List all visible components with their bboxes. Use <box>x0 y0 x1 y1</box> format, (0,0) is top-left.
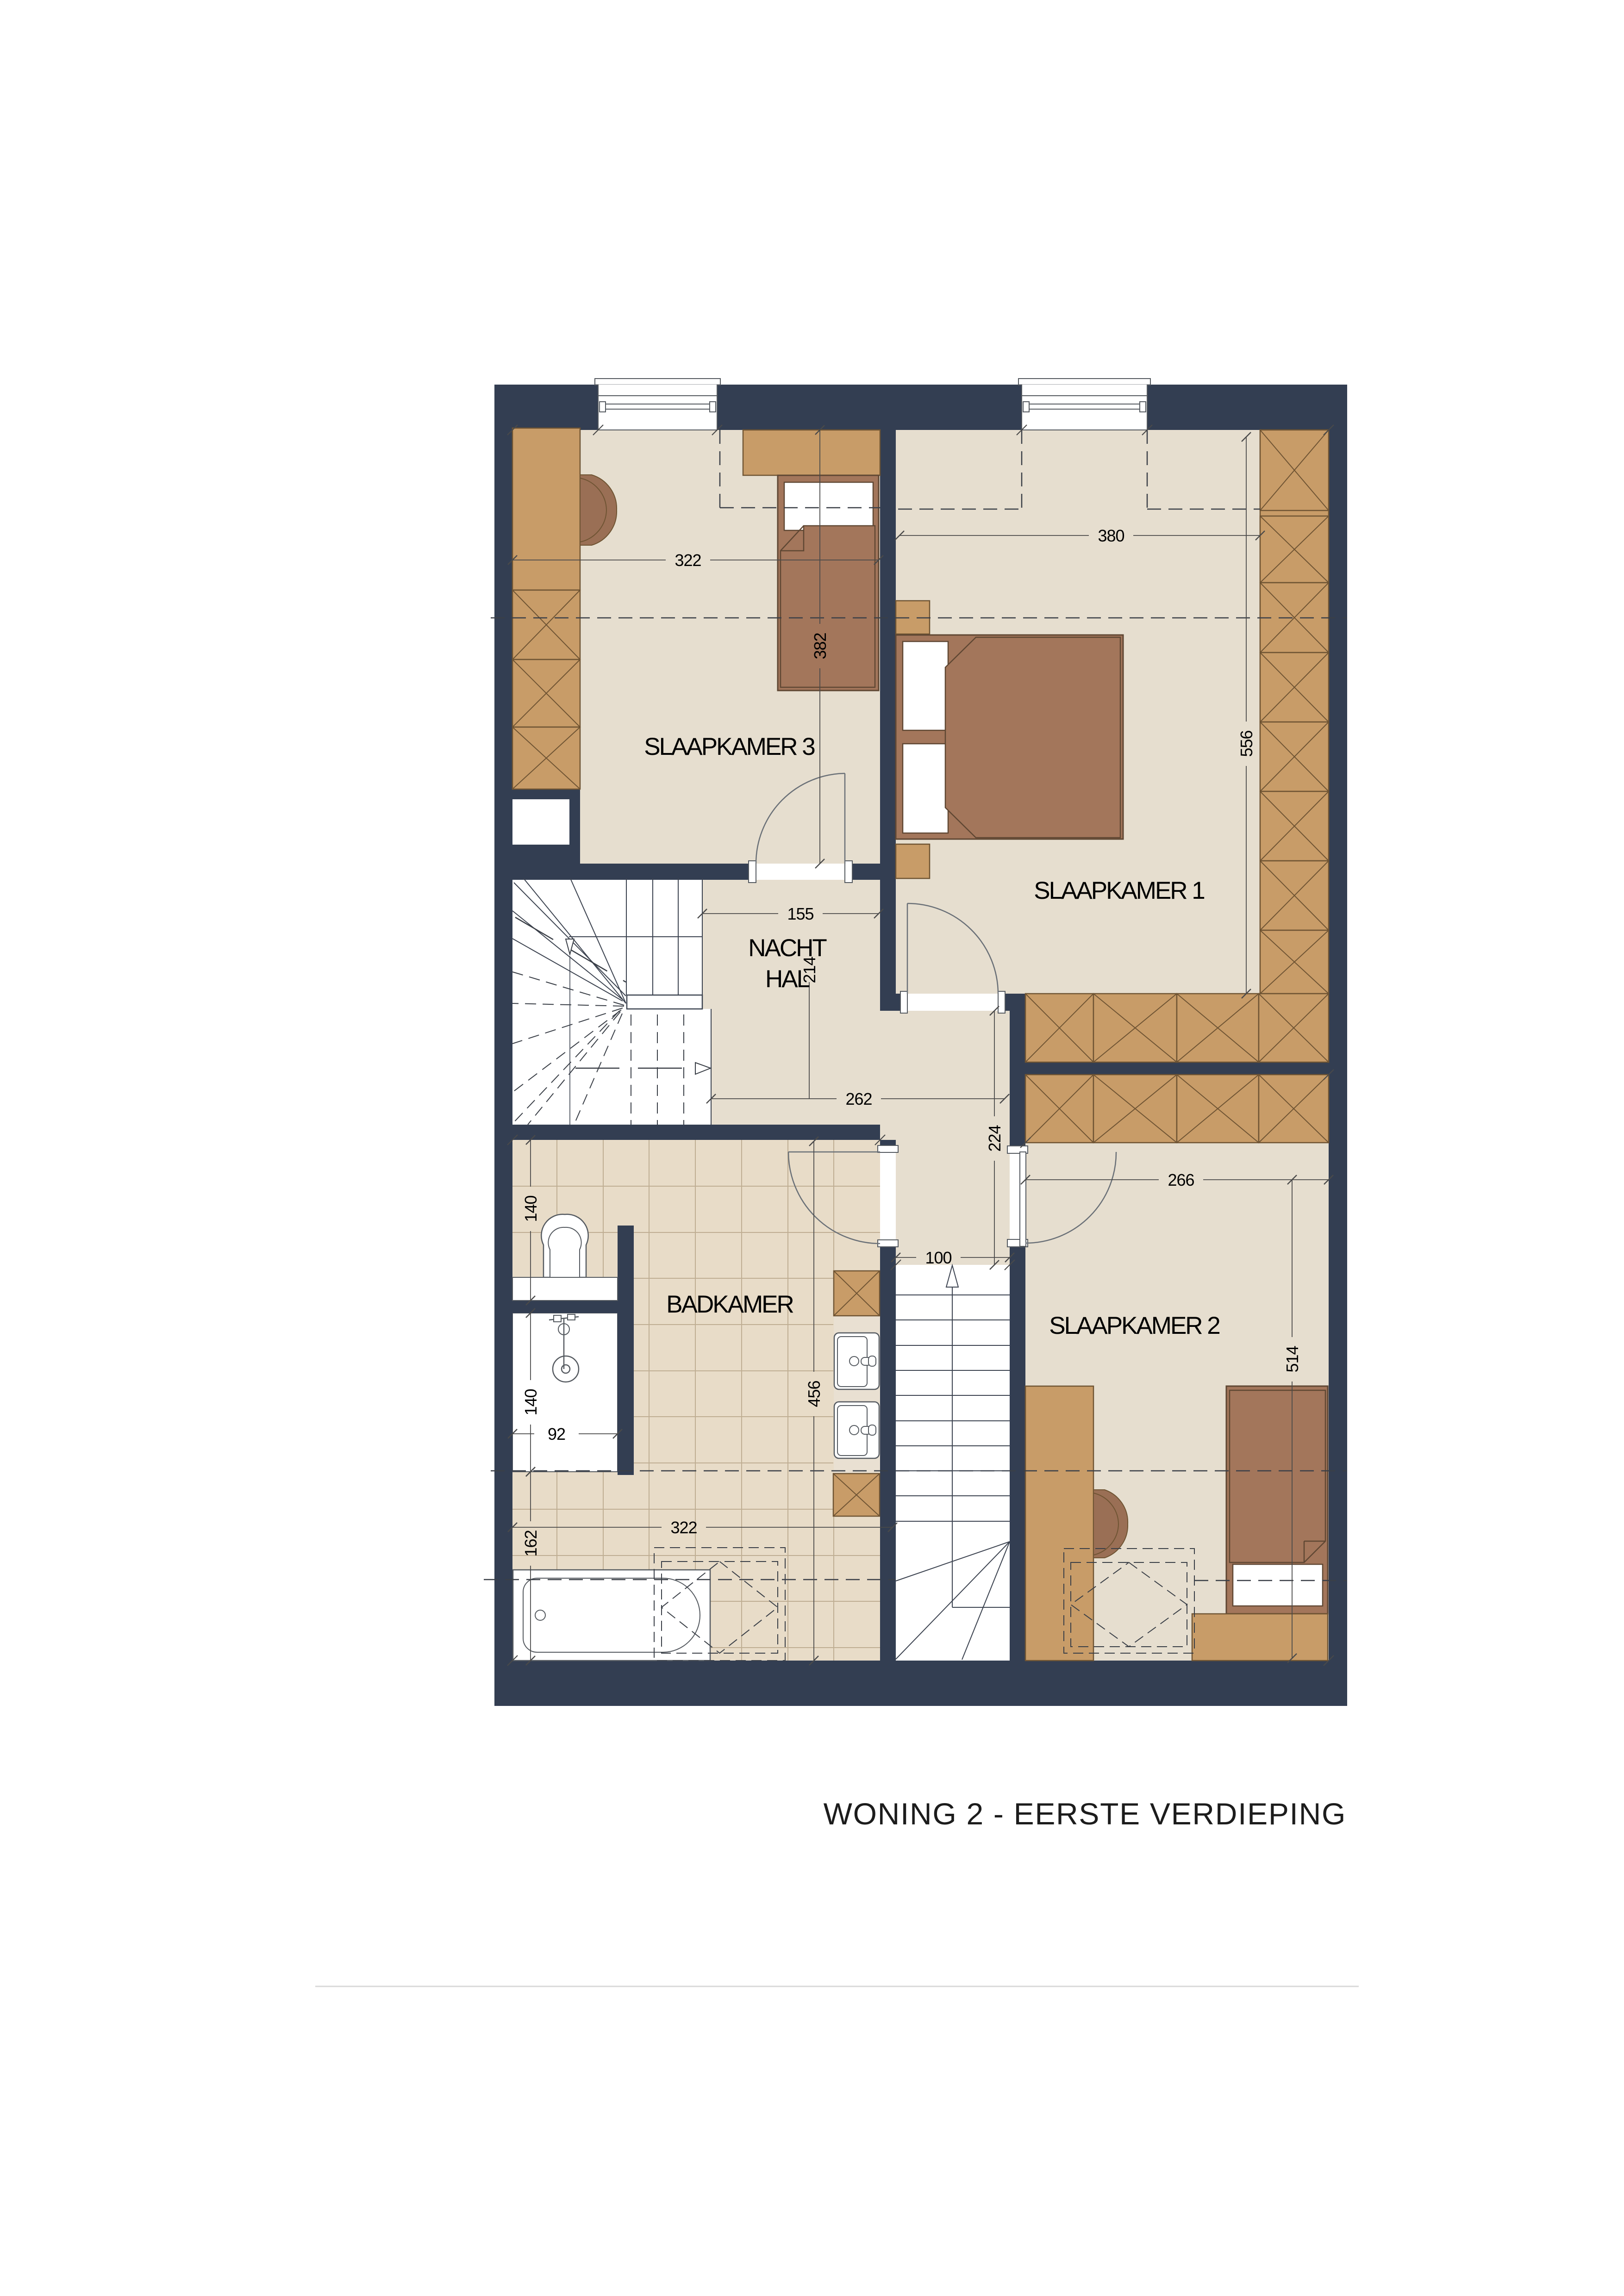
svg-text:SLAAPKAMER 3: SLAAPKAMER 3 <box>644 733 815 760</box>
svg-text:SLAAPKAMER 2: SLAAPKAMER 2 <box>1049 1312 1219 1339</box>
svg-text:BADKAMER: BADKAMER <box>666 1291 793 1318</box>
svg-text:266: 266 <box>1168 1170 1194 1189</box>
svg-text:322: 322 <box>675 551 701 570</box>
svg-text:SLAAPKAMER 1: SLAAPKAMER 1 <box>1034 877 1204 904</box>
svg-text:380: 380 <box>1098 526 1124 545</box>
svg-text:140: 140 <box>521 1195 540 1222</box>
svg-text:WONING 2 - EERSTE VERDIEPING: WONING 2 - EERSTE VERDIEPING <box>824 1797 1346 1831</box>
svg-text:382: 382 <box>811 633 830 659</box>
svg-text:514: 514 <box>1283 1346 1302 1372</box>
svg-text:162: 162 <box>521 1530 540 1556</box>
svg-text:556: 556 <box>1237 730 1256 757</box>
svg-text:100: 100 <box>925 1248 951 1267</box>
svg-text:456: 456 <box>805 1381 824 1407</box>
svg-text:224: 224 <box>985 1125 1004 1151</box>
svg-text:322: 322 <box>670 1518 697 1537</box>
svg-text:92: 92 <box>548 1425 565 1444</box>
svg-text:HAL: HAL <box>765 965 810 993</box>
svg-text:NACHT: NACHT <box>748 934 827 962</box>
svg-text:140: 140 <box>521 1389 540 1415</box>
svg-text:155: 155 <box>787 904 813 923</box>
svg-text:262: 262 <box>845 1089 872 1108</box>
